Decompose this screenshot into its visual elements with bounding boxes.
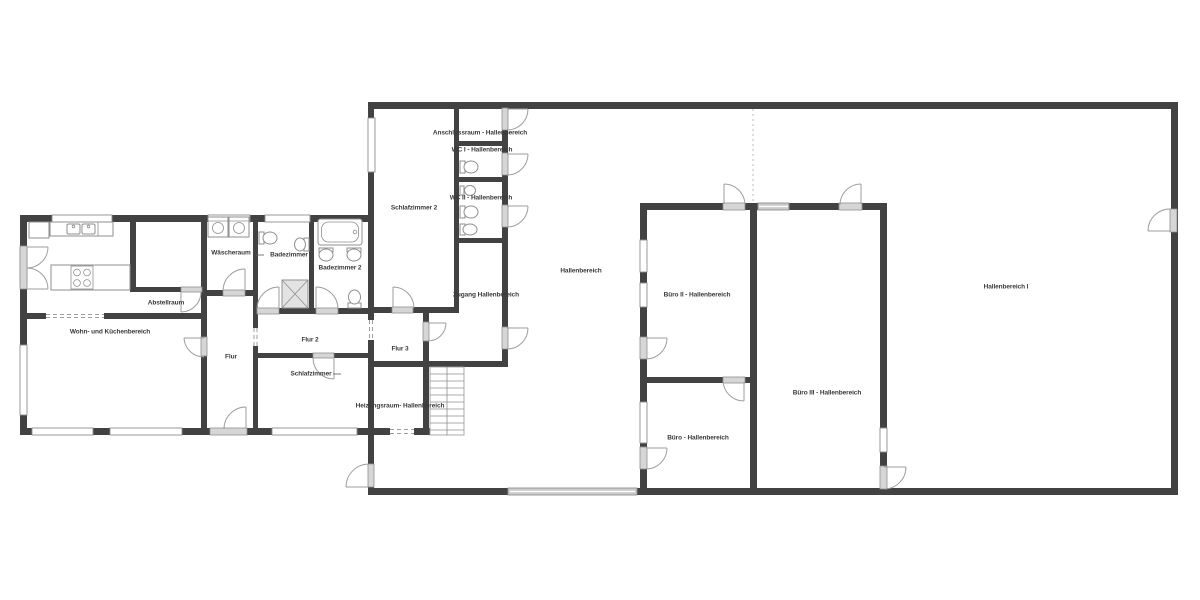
shower-icon — [282, 280, 308, 308]
wall-segment — [454, 141, 503, 146]
sliding-door — [508, 488, 637, 495]
door-wc1 — [502, 153, 528, 175]
room-label-schlafzimmer2: Schlafzimmer 2 — [391, 205, 437, 212]
wall-segment — [454, 238, 503, 243]
room-label-waescheraum: Wäscheraum — [211, 250, 250, 257]
door-wohnbereich — [184, 337, 207, 357]
sink-icon — [347, 248, 361, 261]
kitchen-cabinet — [29, 222, 49, 238]
room-label-wc1: WC I - Hallenbereich — [452, 147, 513, 154]
wall-segment — [253, 215, 258, 435]
window — [272, 428, 357, 435]
room-label-hallenbereich1: Hallenbereich I — [984, 284, 1029, 291]
door-hall-east — [1148, 209, 1177, 232]
door-buero3-halle1 — [880, 466, 906, 489]
door-buero2-halle — [723, 184, 745, 210]
room-label-flur: Flur — [225, 354, 237, 361]
door-main-entrance — [210, 407, 247, 435]
room-label-buero: Büro - Hallenbereich — [667, 435, 729, 442]
washing-machine-icon — [229, 217, 249, 237]
kitchen-island — [51, 265, 130, 290]
toilet-icon — [259, 232, 277, 244]
room-label-flur2: Flur 2 — [301, 337, 318, 344]
window — [640, 402, 647, 443]
room-label-heizungsraum: Heizungsraum- Hallenbereich — [356, 403, 445, 410]
window — [110, 428, 182, 435]
window — [52, 215, 112, 222]
door-buero-west — [640, 447, 667, 469]
wall-segment — [368, 102, 1178, 109]
bathtub-icon — [318, 219, 362, 245]
room-label-flur3: Flur 3 — [391, 346, 408, 353]
window — [20, 345, 27, 415]
floor-plan: Wohn- und Küchenbereich Abstellraum Wäsc… — [0, 0, 1200, 600]
window — [640, 240, 647, 272]
sink-icon — [295, 238, 310, 251]
door-waescheraum — [223, 269, 245, 296]
door-flur3-zugang — [423, 322, 446, 341]
door-anschlussraum — [502, 108, 528, 130]
door-buero2-west — [640, 337, 667, 359]
window — [265, 215, 310, 222]
room-label-wc2: WC II - Hallenbereich — [450, 195, 513, 202]
walls — [20, 102, 1178, 495]
toilet-icon — [460, 161, 478, 173]
toilet-icon — [460, 224, 477, 235]
toilet-icon — [460, 206, 478, 218]
window — [368, 118, 375, 172]
wall-segment — [368, 361, 507, 367]
door-badezimmer2 — [316, 287, 338, 314]
door-wc2 — [502, 205, 528, 227]
wall-segment — [454, 177, 503, 182]
sliding-window — [758, 203, 789, 210]
room-label-abstellraum: Abstellraum — [148, 300, 184, 307]
room-label-wohn-kueche: Wohn- und Küchenbereich — [70, 329, 150, 336]
door-zugang-halle — [502, 327, 528, 349]
window — [880, 428, 887, 452]
door-badezimmer — [257, 287, 279, 314]
wall-segment — [368, 488, 1178, 495]
room-label-zugang: Zugang Hallenbereich — [453, 292, 519, 299]
door-hall-west-exterior — [346, 464, 374, 487]
wall-segment — [1171, 102, 1178, 495]
room-label-schlafzimmer: Schlafzimmer — [290, 371, 331, 378]
window — [640, 283, 647, 307]
door-schlafzimmer2 — [392, 287, 414, 313]
door-buero3-halle — [839, 184, 862, 210]
room-label-buero3: Büro III - Hallenbereich — [793, 390, 861, 397]
door-buero2-buero — [723, 377, 745, 401]
room-label-badezimmer2: Badezimmer 2 — [319, 265, 362, 272]
wall-segment — [750, 203, 757, 495]
room-label-hallenbereich: Hallenbereich — [560, 268, 601, 275]
sink-icon — [319, 248, 333, 261]
room-label-anschlussraum: Anschlussraum - Hallenbereich — [433, 130, 527, 137]
wall-segment — [130, 215, 136, 292]
wall-segment — [201, 215, 207, 435]
toilet-icon — [348, 290, 361, 308]
wall-segment — [309, 215, 314, 308]
door-living-double — [20, 246, 48, 289]
room-label-buero2: Büro II - Hallenbereich — [664, 292, 731, 299]
stairs-icon — [430, 367, 464, 435]
window — [32, 428, 93, 435]
washing-machine-icon — [208, 217, 228, 237]
room-label-badezimmer: Badezimmer — [270, 252, 308, 259]
